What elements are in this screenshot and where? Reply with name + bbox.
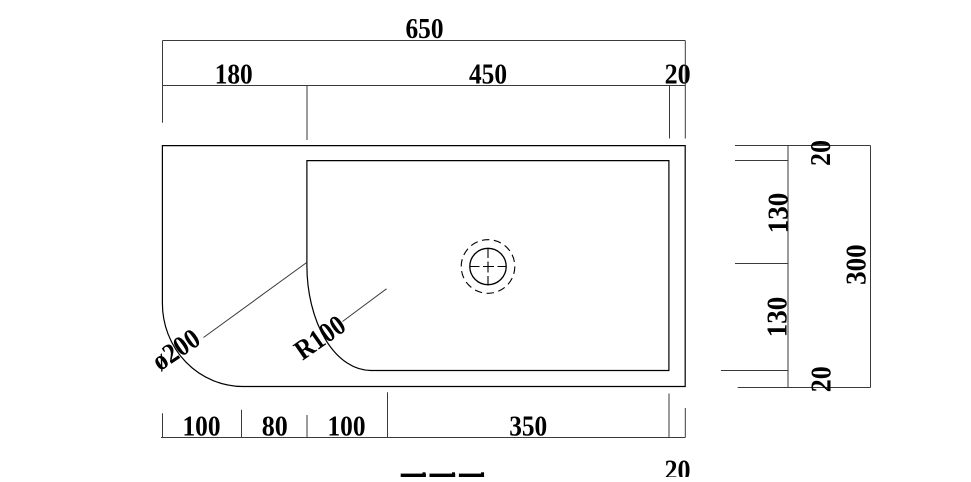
svg-text:650: 650 (406, 14, 444, 45)
svg-text:100: 100 (183, 412, 221, 443)
svg-text:300: 300 (842, 244, 873, 285)
svg-text:20: 20 (665, 456, 691, 478)
svg-text:130: 130 (764, 193, 795, 234)
svg-text:20: 20 (807, 366, 838, 392)
svg-text:80: 80 (262, 412, 288, 443)
svg-text:350: 350 (509, 412, 547, 443)
svg-text:20: 20 (806, 140, 837, 166)
svg-text:100: 100 (328, 412, 366, 443)
svg-text:450: 450 (469, 59, 507, 90)
svg-text:130: 130 (763, 297, 794, 338)
svg-text:180: 180 (215, 59, 253, 90)
svg-text:20: 20 (665, 59, 691, 90)
